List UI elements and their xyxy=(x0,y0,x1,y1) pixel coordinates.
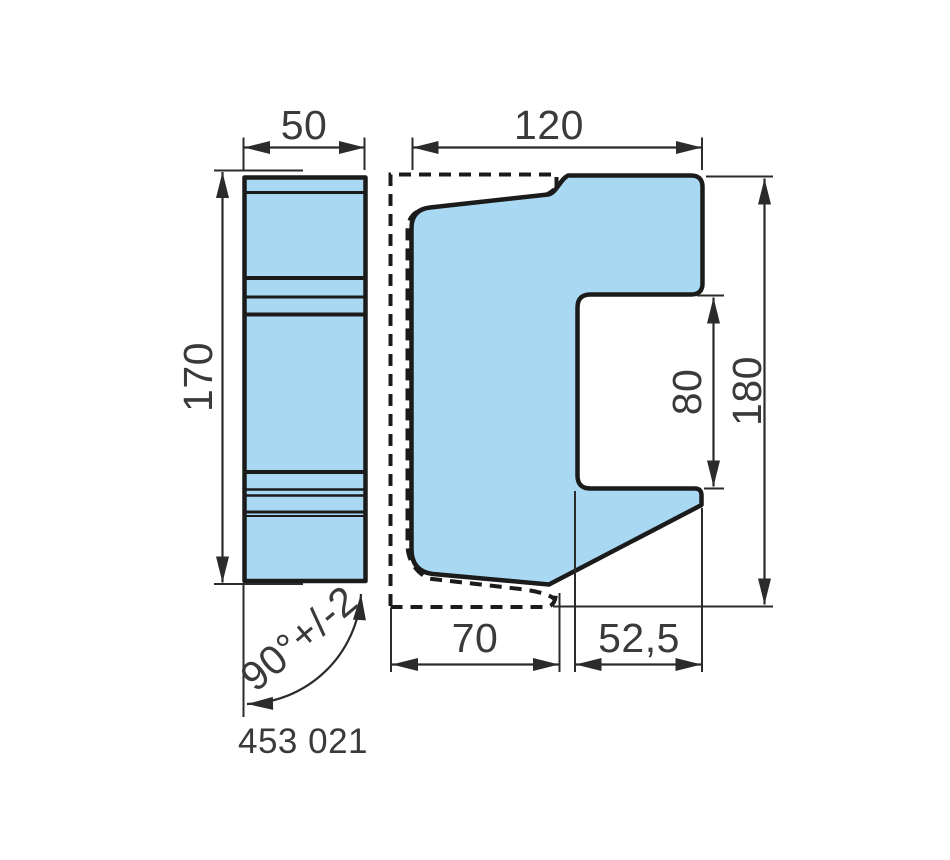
dimension-label-170: 170 xyxy=(175,342,221,412)
dimension-label-120: 120 xyxy=(514,102,584,148)
dimension-label-52-5: 52,5 xyxy=(598,615,680,661)
angle-annotation: 90°+/-2 xyxy=(232,577,367,717)
dimension-label-180: 180 xyxy=(724,356,770,426)
technical-drawing-page: 50 170 90°+/-2 453 021 xyxy=(0,0,950,860)
dimension-end-view-width: 50 xyxy=(244,102,366,170)
profile-view xyxy=(391,175,703,608)
gasket-profile-shape xyxy=(412,176,703,585)
angle-label: 90°+/-2 xyxy=(232,577,367,700)
dimension-label-50: 50 xyxy=(281,102,328,148)
dimension-notch-height: 80 xyxy=(664,296,724,489)
part-number-label: 453 021 xyxy=(238,722,368,761)
dimension-base-width: 70 xyxy=(391,593,560,672)
dimension-label-80: 80 xyxy=(664,369,710,416)
end-view xyxy=(245,178,366,582)
dimension-label-70: 70 xyxy=(452,615,499,661)
dimension-profile-width: 120 xyxy=(413,102,703,170)
technical-drawing-canvas: 50 170 90°+/-2 453 021 xyxy=(0,0,950,860)
dashed-uncompressed-outline xyxy=(391,592,557,607)
gasket-end-view-body xyxy=(245,178,366,582)
